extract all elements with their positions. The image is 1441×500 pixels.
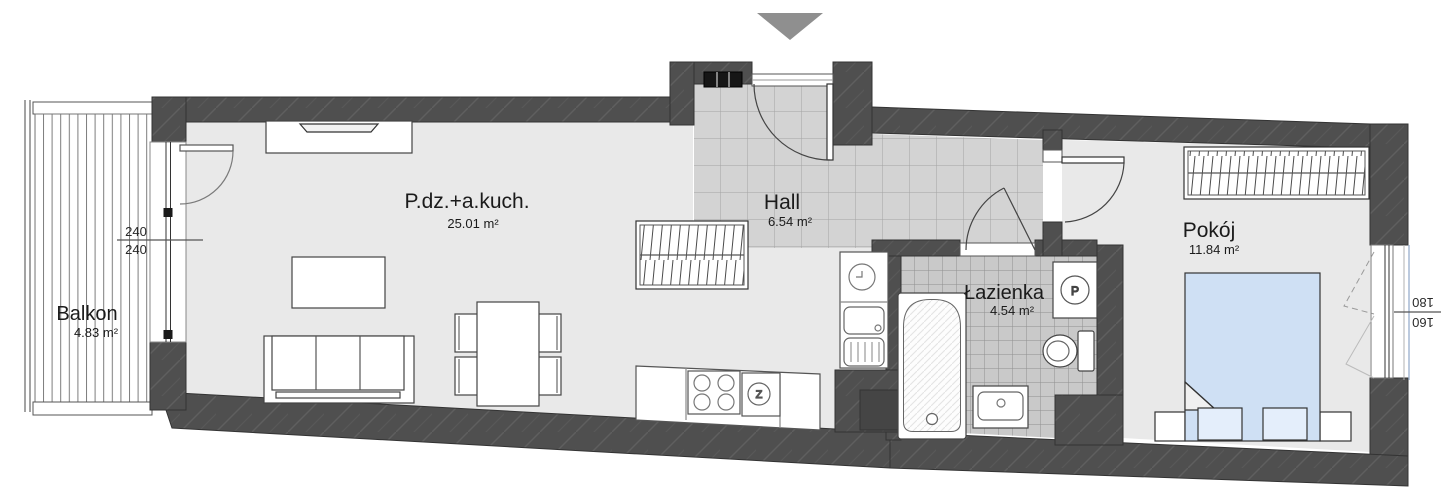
coffee-table: [292, 257, 385, 308]
floor-plan-svg: Z P: [0, 0, 1441, 500]
bathroom-sink: [973, 386, 1028, 428]
sofa-seat: [272, 336, 404, 390]
kitchen-basin: [844, 307, 884, 334]
label-lazienka: Łazienka: [964, 282, 1045, 304]
toilet-tank: [1078, 331, 1094, 371]
balcony-window-mullion1: [164, 208, 173, 217]
balcony-rail-top: [33, 102, 152, 114]
label-balkon-area: 4.83 m²: [74, 325, 119, 340]
label-hall-area: 6.54 m²: [768, 214, 813, 229]
toilet: [1043, 331, 1094, 371]
balcony-window: [150, 142, 186, 342]
balcony-deck: [35, 114, 152, 402]
dimension-bedroom-window: 180 160: [1394, 295, 1441, 330]
wall-top-left: [152, 97, 694, 122]
dim-window-bottom: 160: [1412, 315, 1434, 330]
hall-cabinet: [636, 221, 748, 289]
wall-left-top: [152, 97, 186, 142]
dim-balcony-top: 240: [125, 224, 147, 239]
sofa-front-edge: [276, 392, 400, 398]
sofa: [264, 336, 414, 403]
dining-table: [477, 302, 539, 406]
washing-machine: P: [1053, 262, 1097, 318]
entrance-arrow: [757, 13, 823, 40]
label-pokoj-area: 11.84 m²: [1189, 242, 1240, 257]
wall-bath-bottom-chunk: [1055, 395, 1123, 445]
floor-plan: Z P: [0, 0, 1441, 500]
bathtub: [898, 293, 966, 439]
electrical-panel-box: [704, 72, 742, 87]
kitchen-sink-symbol: Z: [756, 389, 763, 401]
kitchen-column: [840, 252, 888, 368]
wall-entry-right-column: [833, 62, 872, 145]
washing-machine-symbol: P: [1071, 284, 1079, 298]
bed-pillow-right: [1263, 408, 1307, 440]
label-living: P.dz.+a.kuch.: [404, 190, 529, 213]
electrical-panel: [704, 72, 742, 87]
bathtub-drain: [927, 414, 938, 425]
bedroom-window: [1371, 245, 1393, 378]
balcony: [25, 100, 152, 415]
bedroom-threshold: [1043, 150, 1062, 162]
dim-balcony-bottom: 240: [125, 242, 147, 257]
bed-pillow-left: [1198, 408, 1242, 440]
wall-kitchen-stub-inner: [860, 390, 898, 430]
label-pokoj: Pokój: [1183, 219, 1236, 242]
label-hall: Hall: [764, 191, 800, 214]
balcony-window-mullion2: [164, 330, 173, 339]
balcony-rail-bottom: [33, 402, 152, 415]
bedroom-door-leaf: [1062, 157, 1124, 163]
label-lazienka-area: 4.54 m²: [990, 303, 1035, 318]
balcony-door-leaf: [180, 145, 233, 151]
bed: [1185, 273, 1320, 441]
bathroom-threshold: [960, 243, 1035, 256]
wardrobe: [1184, 147, 1369, 199]
label-living-area: 25.01 m²: [447, 216, 499, 231]
wall-left-bottom: [150, 342, 186, 410]
nightstand-right: [1320, 412, 1351, 441]
label-balkon: Balkon: [56, 303, 117, 325]
tv: [300, 124, 378, 132]
wall-entry-left-column: [670, 62, 694, 125]
wall-bedroom-door-top: [1043, 130, 1062, 150]
wall-bedroom-door-stub: [1043, 222, 1062, 256]
toilet-bowl: [1043, 335, 1077, 367]
kitchen-drainer: [844, 338, 884, 366]
entrance-door-leaf: [827, 84, 833, 160]
nightstand-left: [1155, 412, 1185, 441]
bathtub-inner: [904, 300, 961, 432]
wall-right-column: [1370, 124, 1408, 245]
dim-window-top: 180: [1412, 295, 1434, 310]
